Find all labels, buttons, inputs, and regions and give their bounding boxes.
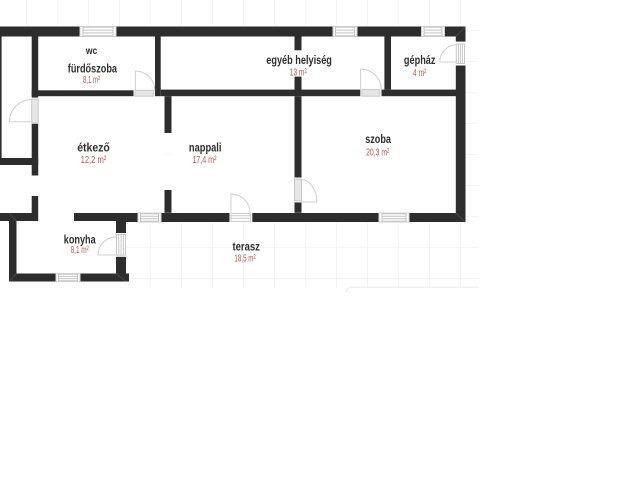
svg-text:wc: wc	[85, 45, 97, 57]
svg-text:szoba: szoba	[365, 134, 391, 146]
svg-text:17,4 m²: 17,4 m²	[192, 155, 217, 166]
svg-text:12,2 m²: 12,2 m²	[81, 155, 107, 166]
svg-text:étkező: étkező	[77, 142, 110, 154]
svg-text:8,1 m²: 8,1 m²	[83, 75, 100, 86]
svg-text:nappali: nappali	[189, 142, 222, 154]
svg-text:20,3 m²: 20,3 m²	[366, 148, 390, 159]
svg-text:terasz: terasz	[232, 242, 260, 254]
svg-text:gépház: gépház	[404, 55, 436, 67]
svg-text:egyéb helyiség: egyéb helyiség	[266, 55, 332, 67]
svg-text:8,1 m²: 8,1 m²	[71, 245, 90, 256]
svg-text:fürdőszoba: fürdőszoba	[68, 64, 118, 76]
svg-text:4 m²: 4 m²	[413, 68, 427, 79]
svg-text:13 m²: 13 m²	[290, 68, 307, 79]
svg-text:18,5 m²: 18,5 m²	[234, 254, 256, 265]
